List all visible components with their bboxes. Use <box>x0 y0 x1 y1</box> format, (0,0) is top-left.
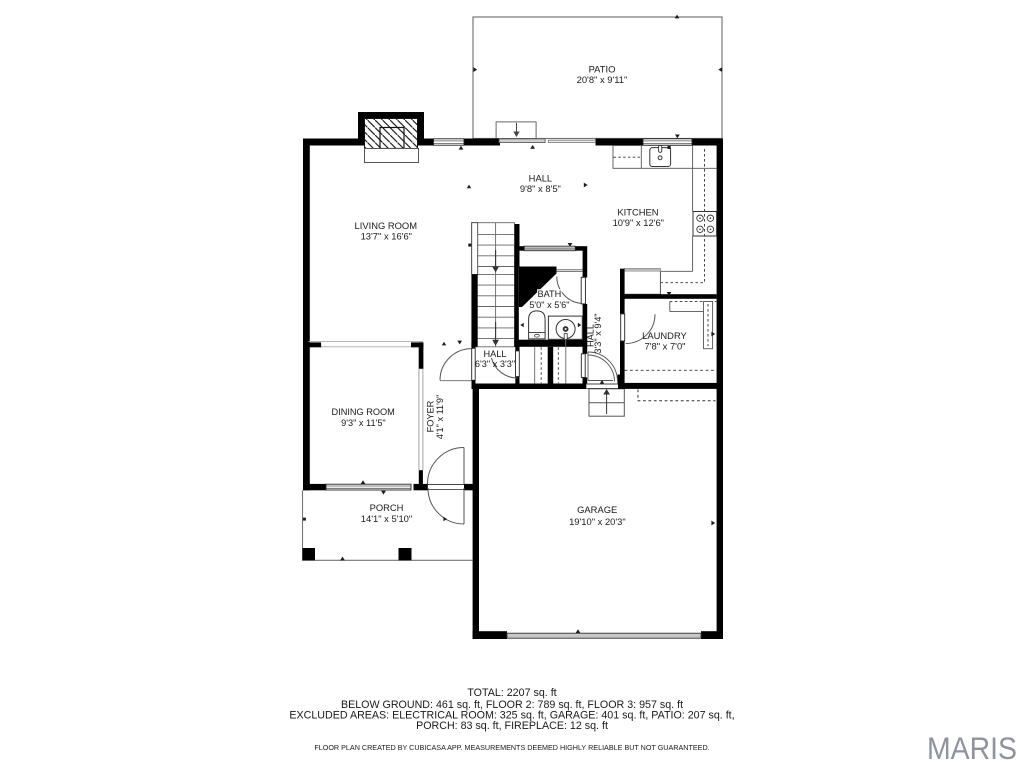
svg-text:HALL: HALL <box>529 173 552 184</box>
svg-text:BATH: BATH <box>537 289 561 299</box>
svg-text:7'8" x 7'0": 7'8" x 7'0" <box>645 341 686 352</box>
svg-text:GARAGE: GARAGE <box>577 504 617 515</box>
svg-text:20'8" x 9'11": 20'8" x 9'11" <box>577 74 628 85</box>
svg-text:9'3" x 11'5": 9'3" x 11'5" <box>341 418 386 428</box>
svg-text:19'10" x 20'3": 19'10" x 20'3" <box>569 516 626 527</box>
svg-text:DINING ROOM: DINING ROOM <box>332 407 395 417</box>
svg-text:HALL: HALL <box>484 349 507 359</box>
svg-text:FLOOR PLAN CREATED BY CUBICASA: FLOOR PLAN CREATED BY CUBICASA APP. MEAS… <box>314 743 709 752</box>
svg-text:PATIO: PATIO <box>589 64 616 75</box>
svg-text:9'8" x 8'5": 9'8" x 8'5" <box>520 183 561 194</box>
svg-text:5'0" x 5'6": 5'0" x 5'6" <box>529 300 569 310</box>
svg-text:LAUNDRY: LAUNDRY <box>642 330 687 341</box>
svg-text:3'3" x 9'4": 3'3" x 9'4" <box>593 313 603 353</box>
svg-text:4'1" x 11'9": 4'1" x 11'9" <box>435 395 445 440</box>
svg-text:LIVING ROOM: LIVING ROOM <box>355 220 418 231</box>
svg-text:FOYER: FOYER <box>426 400 436 432</box>
svg-text:PORCH: PORCH <box>370 502 404 513</box>
svg-text:6'3" x 3'3": 6'3" x 3'3" <box>475 359 515 369</box>
svg-text:PORCH: 83 sq. ft, FIREPLACE: 1: PORCH: 83 sq. ft, FIREPLACE: 12 sq. ft <box>416 720 608 732</box>
svg-text:MARIS: MARIS <box>927 730 1017 766</box>
svg-text:10'9" x 12'6": 10'9" x 12'6" <box>613 217 664 228</box>
svg-text:TOTAL: 2207 sq. ft: TOTAL: 2207 sq. ft <box>467 687 556 699</box>
svg-text:14'1" x 5'10": 14'1" x 5'10" <box>361 513 412 524</box>
svg-text:13'7" x 16'6": 13'7" x 16'6" <box>361 231 412 242</box>
